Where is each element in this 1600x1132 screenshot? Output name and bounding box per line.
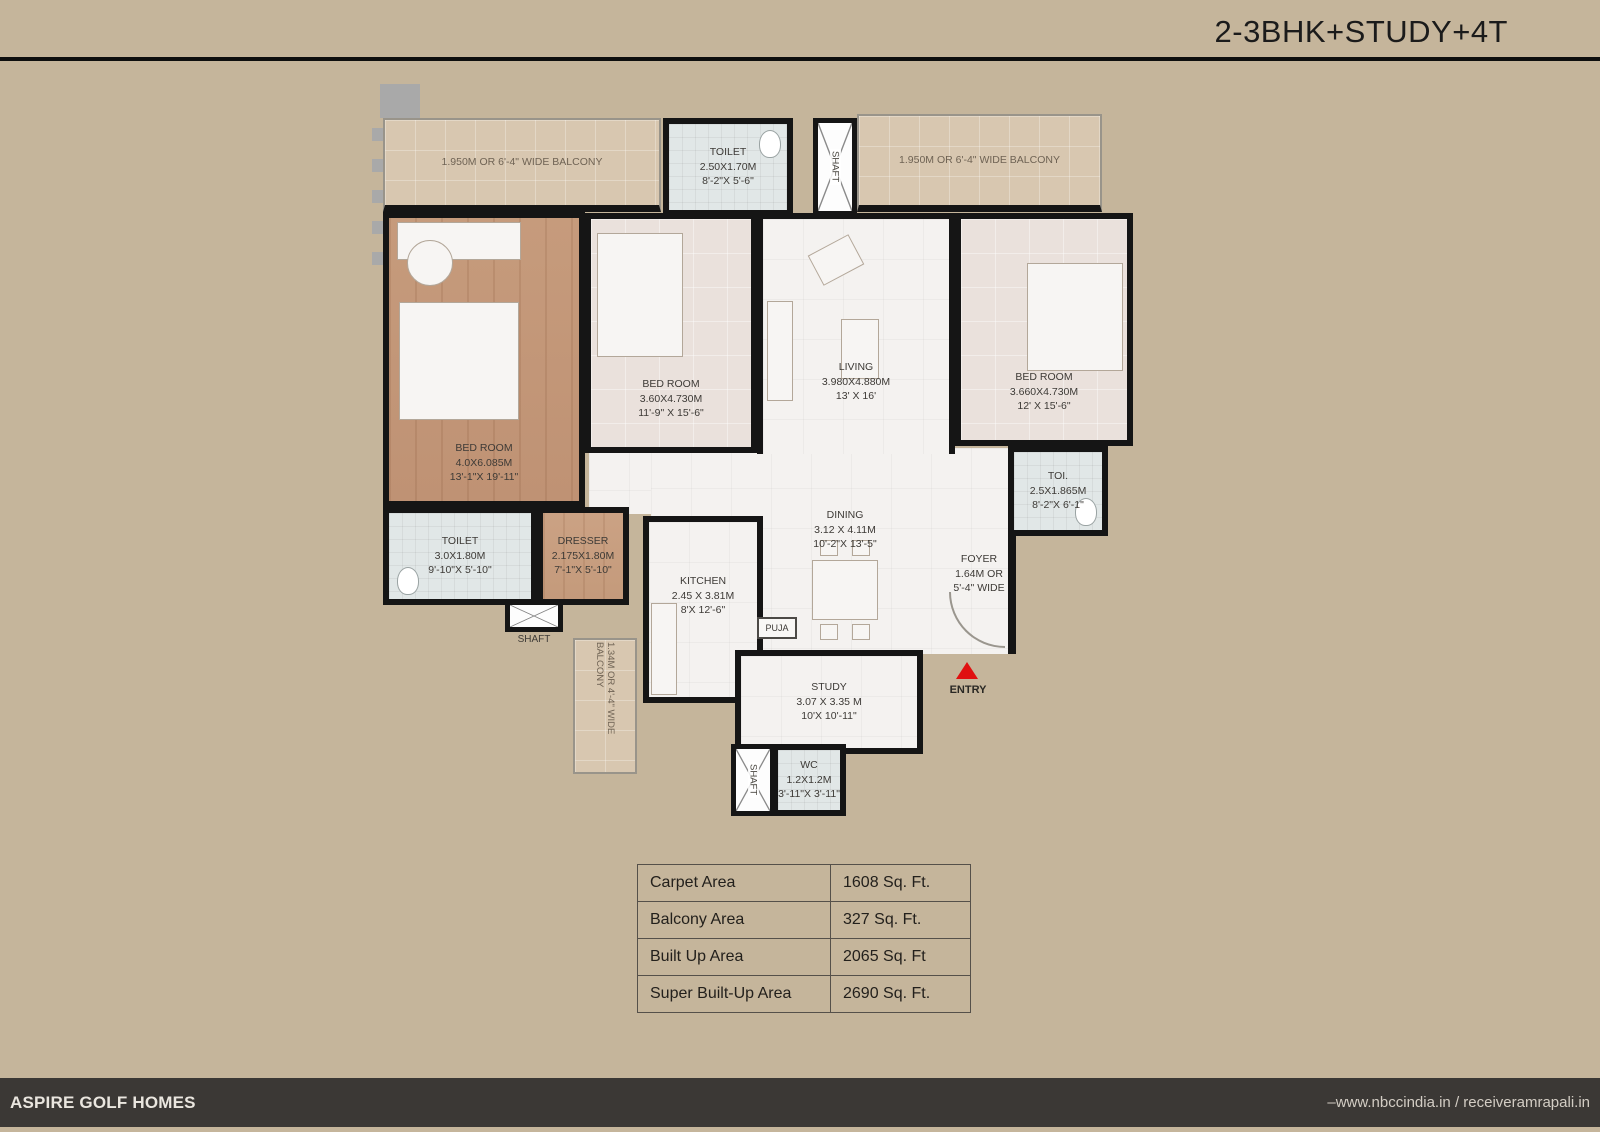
table-row: Balcony Area 327 Sq. Ft. — [638, 902, 971, 939]
toilet-fixture-icon — [397, 567, 419, 595]
room-study: STUDY 3.07 X 3.35 M 10'X 10'-11" — [735, 650, 923, 754]
shaft-top-label: SHAFT — [830, 149, 841, 184]
room-dims-ft: 10'-2"X 13'-5" — [770, 537, 920, 552]
table-row: Super Built-Up Area 2690 Sq. Ft. — [638, 976, 971, 1013]
room-name: BED ROOM — [638, 377, 704, 392]
shaft-wc: SHAFT — [731, 744, 775, 816]
room-dims-m: 2.5X1.865M — [1030, 484, 1087, 499]
balcony-right-label: 1.950M OR 6'-4" WIDE BALCONY — [899, 153, 1060, 168]
room-dims-ft: 5'-4" WIDE — [933, 581, 1025, 596]
room-name: WC — [778, 758, 840, 773]
room-dims-ft: 9'-10"X 5'-10" — [428, 563, 491, 578]
area-value: 1608 Sq. Ft. — [831, 865, 971, 902]
room-dims-m: 3.660X4.730M — [1010, 385, 1078, 400]
room-dims-m: 3.07 X 3.35 M — [796, 695, 861, 710]
puja-label: PUJA — [765, 623, 788, 633]
shaft-wc-label: SHAFT — [748, 762, 759, 797]
room-dims-ft: 8'-2"X 5'-6" — [700, 174, 757, 189]
room-name: BED ROOM — [1010, 370, 1078, 385]
area-value: 2690 Sq. Ft. — [831, 976, 971, 1013]
room-dresser: DRESSER 2.175X1.80M 7'-1"X 5'-10" — [537, 507, 629, 605]
room-dims-m: 3.980X4.880M — [822, 375, 890, 390]
area-value: 2065 Sq. Ft — [831, 939, 971, 976]
room-name: BED ROOM — [450, 441, 518, 456]
entry-arrow-icon — [956, 662, 978, 679]
room-dims-ft: 8'-2"X 6'-1" — [1030, 498, 1087, 513]
room-dims-ft: 3'-11"X 3'-11" — [778, 787, 840, 802]
chair-furniture — [852, 624, 870, 640]
room-dims-m: 2.175X1.80M — [552, 549, 614, 564]
room-dims-m: 3.0X1.80M — [428, 549, 491, 564]
toilet-fixture-icon — [759, 130, 781, 158]
room-dims-m: 3.12 X 4.11M — [770, 523, 920, 538]
room-dims-ft: 12' X 15'-6" — [1010, 399, 1078, 414]
room-toilet-top: TOILET 2.50X1.70M 8'-2"X 5'-6" — [663, 118, 793, 216]
room-name: KITCHEN — [672, 574, 734, 589]
puja-alcove: PUJA — [757, 617, 797, 639]
room-name: DINING — [770, 508, 920, 523]
footer-website: –www.nbccindia.in / receiveramrapali.in — [1327, 1094, 1590, 1111]
room-dims-m: 2.50X1.70M — [700, 160, 757, 175]
chair-furniture — [407, 240, 453, 286]
brochure-page: 2-3BHK+STUDY+4T 1.950M OR 6'-4" WIDE BAL… — [0, 0, 1600, 1132]
room-bedroom-3: BED ROOM 3.660X4.730M 12' X 15'-6" — [955, 213, 1133, 446]
room-name: TOI. — [1030, 469, 1087, 484]
room-dims-m: 4.0X6.085M — [450, 456, 518, 471]
area-label: Carpet Area — [638, 865, 831, 902]
duct-block — [380, 84, 420, 118]
area-label: Super Built-Up Area — [638, 976, 831, 1013]
dining-label: DINING 3.12 X 4.11M 10'-2"X 13'-5" — [770, 508, 920, 552]
entry-label: ENTRY — [936, 684, 1000, 696]
foyer-label: FOYER 1.64M OR 5'-4" WIDE — [933, 552, 1025, 596]
bed-furniture — [597, 233, 683, 357]
balcony-bottom-label: 1.34M OR 4'-4" WIDE BALCONY — [594, 640, 616, 772]
table-row: Carpet Area 1608 Sq. Ft. — [638, 865, 971, 902]
chair-furniture — [820, 624, 838, 640]
room-master-bedroom: BED ROOM 4.0X6.085M 13'-1"X 19'-11" — [383, 212, 585, 507]
room-bedroom-2: BED ROOM 3.60X4.730M 11'-9" X 15'-6" — [585, 213, 757, 453]
header-divider — [0, 57, 1600, 61]
balcony-right: 1.950M OR 6'-4" WIDE BALCONY — [857, 114, 1102, 212]
bed-furniture — [1027, 263, 1123, 371]
room-name: STUDY — [796, 680, 861, 695]
page-title: 2-3BHK+STUDY+4T — [1215, 14, 1509, 50]
room-name: DRESSER — [552, 534, 614, 549]
room-dims-ft: 11'-9" X 15'-6" — [638, 406, 704, 421]
room-dims-m: 3.60X4.730M — [638, 392, 704, 407]
room-dims-m: 1.64M OR — [933, 567, 1025, 582]
room-name: LIVING — [822, 360, 890, 375]
dining-table-furniture — [812, 560, 878, 620]
brand-name: ASPIRE GOLF HOMES — [10, 1093, 196, 1113]
area-label: Built Up Area — [638, 939, 831, 976]
shaft-left — [505, 600, 563, 632]
room-name: TOILET — [428, 534, 491, 549]
room-living: LIVING 3.980X4.880M 13' X 16' — [757, 213, 955, 454]
area-table: Carpet Area 1608 Sq. Ft. Balcony Area 32… — [637, 864, 971, 1013]
room-wc: WC 1.2X1.2M 3'-11"X 3'-11" — [772, 744, 846, 816]
balcony-bottom: 1.34M OR 4'-4" WIDE BALCONY — [573, 638, 637, 774]
balcony-left-label: 1.950M OR 6'-4" WIDE BALCONY — [442, 155, 603, 170]
room-toilet-left: TOILET 3.0X1.80M 9'-10"X 5'-10" — [383, 507, 537, 605]
room-dims-ft: 10'X 10'-11" — [796, 709, 861, 724]
balcony-left: 1.950M OR 6'-4" WIDE BALCONY — [383, 118, 661, 212]
room-name: TOILET — [700, 145, 757, 160]
room-dims-ft: 8'X 12'-6" — [672, 603, 734, 618]
room-dims-ft: 13' X 16' — [822, 389, 890, 404]
room-dims-m: 1.2X1.2M — [778, 773, 840, 788]
sofa-furniture — [767, 301, 793, 401]
shaft-top: SHAFT — [813, 118, 857, 216]
room-toilet-right: TOI. 2.5X1.865M 8'-2"X 6'-1" — [1008, 446, 1108, 536]
armchair-furniture — [808, 234, 865, 286]
table-row: Built Up Area 2065 Sq. Ft — [638, 939, 971, 976]
bed-furniture — [399, 302, 519, 420]
room-dims-ft: 13'-1"X 19'-11" — [450, 470, 518, 485]
area-value: 327 Sq. Ft. — [831, 902, 971, 939]
footer-bar: ASPIRE GOLF HOMES –www.nbccindia.in / re… — [0, 1078, 1600, 1127]
area-label: Balcony Area — [638, 902, 831, 939]
room-dims-m: 2.45 X 3.81M — [672, 589, 734, 604]
room-name: FOYER — [933, 552, 1025, 567]
shaft-left-label: SHAFT — [494, 634, 574, 645]
room-dims-ft: 7'-1"X 5'-10" — [552, 563, 614, 578]
